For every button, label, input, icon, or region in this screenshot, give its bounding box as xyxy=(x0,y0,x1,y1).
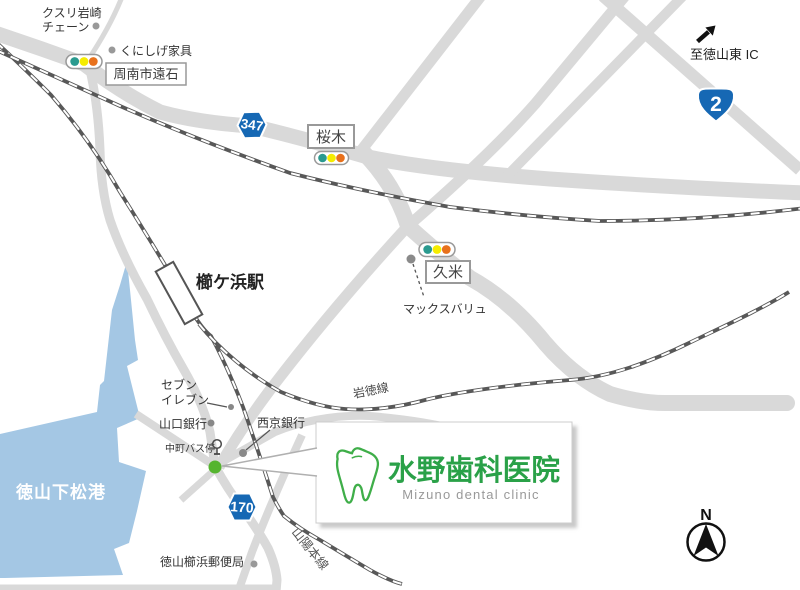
svg-text:徳山櫛浜郵便局: 徳山櫛浜郵便局 xyxy=(160,554,244,569)
svg-text:徳山下松港: 徳山下松港 xyxy=(15,482,106,502)
svg-text:水野歯科医院: 水野歯科医院 xyxy=(388,453,560,487)
svg-text:周南市遠石: 周南市遠石 xyxy=(113,67,178,82)
svg-text:久米: 久米 xyxy=(433,264,463,281)
svg-text:2: 2 xyxy=(710,93,722,116)
svg-text:マックスバリュ: マックスバリュ xyxy=(403,302,487,316)
svg-text:N: N xyxy=(700,507,712,524)
svg-text:イレブン: イレブン xyxy=(161,392,209,407)
svg-text:セブン: セブン xyxy=(161,377,197,392)
svg-text:西京銀行: 西京銀行 xyxy=(257,416,305,430)
svg-text:クスリ岩崎: クスリ岩崎 xyxy=(42,5,102,20)
svg-text:山口銀行: 山口銀行 xyxy=(159,417,207,431)
svg-text:桜木: 桜木 xyxy=(316,129,346,146)
svg-text:くにしげ家具: くにしげ家具 xyxy=(120,43,192,58)
svg-text:チェーン: チェーン xyxy=(42,20,89,34)
svg-text:347: 347 xyxy=(240,116,264,134)
svg-text:至徳山東 IC: 至徳山東 IC xyxy=(690,47,759,62)
svg-text:中町バス停: 中町バス停 xyxy=(165,442,215,455)
svg-text:170: 170 xyxy=(230,498,255,516)
svg-text:櫛ケ浜駅: 櫛ケ浜駅 xyxy=(196,272,265,292)
svg-text:Mizuno dental clinic: Mizuno dental clinic xyxy=(402,487,539,502)
